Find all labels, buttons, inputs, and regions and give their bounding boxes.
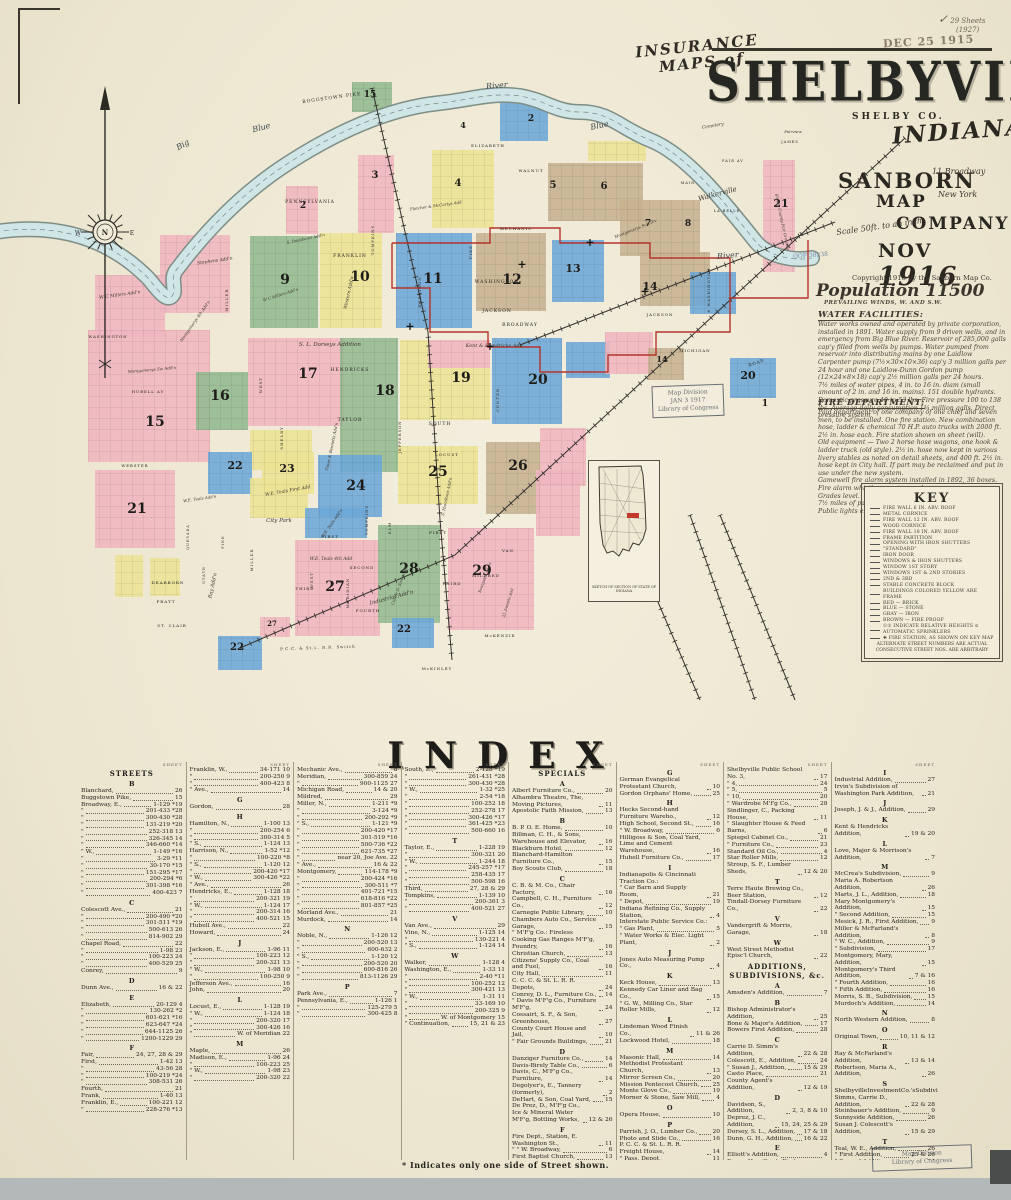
index-entry: Bowers First Addition,28 <box>727 1027 828 1034</box>
index-entry: Indiana Refining Co., Supply Station,4 <box>620 906 721 920</box>
index-entry: " Susan J., Addition,15 & 29 <box>727 1065 828 1072</box>
index-letter-header: T <box>835 1138 936 1146</box>
street-label: MILLER <box>249 549 254 572</box>
index-entry: Hubell Ave.,22 <box>190 923 291 930</box>
sheet-number: 4 <box>460 120 466 130</box>
index-entry: "30-170 *15 <box>81 863 183 870</box>
index-entry: First,1-42 13 <box>81 1059 183 1066</box>
index-entry: South, E.,2-128 *19 <box>405 767 506 774</box>
index-entry: Simms, Carrie D., Addition,22 & 28 <box>835 1095 936 1109</box>
street-label: MAIN <box>681 181 696 185</box>
sheet-label: SHEET <box>620 762 721 767</box>
index-letter-header: G <box>620 769 721 777</box>
index-entry: Van Ave.,29 <box>405 923 506 930</box>
sheet-number: 27 <box>325 579 344 595</box>
index-footnote: * Indicates only one side of Street show… <box>0 1160 1011 1170</box>
index-entry: Love, Major & Morrison's Addition,7 <box>835 848 936 862</box>
street-label: ST. CLAIR <box>157 623 187 628</box>
street-label: LOCUST <box>435 452 459 457</box>
index-entry: " Fair Grounds Buildings,21 <box>512 1039 613 1046</box>
index-entry: ShelbyvilleInvestmentCo.'sSubdivision,8 <box>835 1088 936 1095</box>
index-entry: "200-325 9 <box>405 1008 506 1015</box>
street-label: STATE <box>201 566 206 584</box>
parcel-grid <box>690 272 736 314</box>
index-entry: Montgomery's Third Addition,7 & 16 <box>835 967 936 981</box>
index-entry: "814-902 29 <box>81 934 183 941</box>
index-entry: Photo and Slide Co.,16 <box>620 1136 721 1143</box>
street-label: TOMPKINS <box>364 505 369 535</box>
index-entry: "500-660 16 <box>405 828 506 835</box>
index-entry: Elizabeth,20-129 4 <box>81 1002 183 1009</box>
addition-label: City Park <box>266 518 292 524</box>
street-label: HARRISON <box>417 276 422 308</box>
sheet-number: 22 <box>227 459 242 472</box>
street-label: PRATT <box>157 599 176 604</box>
index-entry: "3-124 *9 <box>297 808 398 815</box>
key-footnote-1: ALTERNATE STREET NUMBERS ARE ACTUAL <box>870 642 994 648</box>
index-entry: "200-321 19 <box>190 896 291 903</box>
index-entry: Chapel Road,22 <box>81 941 183 948</box>
index-entry: "400-529 25 <box>81 961 183 968</box>
index-entry: " Gas Plant,5 <box>620 926 721 933</box>
publisher-address2: New York <box>938 190 977 199</box>
index-entry: "100-223 25 <box>190 1062 291 1069</box>
index-entry: "623-647 *24 <box>81 1022 183 1029</box>
street-label: FOURTH <box>356 608 381 613</box>
index-entry: Cossairt, S. F., & Son, Greenhouse,27 <box>512 1012 613 1026</box>
index-entry: Davidson, S., Addition,2, 3, 8 & 10 <box>727 1102 828 1116</box>
index-letter-header: C <box>727 1036 828 1044</box>
sheet-number: 8 <box>685 219 691 229</box>
index-entry: "200-424 *16 <box>297 876 398 883</box>
index-entry: "131-219 *20 <box>81 822 183 829</box>
index-entry: Susan J. Colescott's Addition,15 & 29 <box>835 1122 936 1136</box>
sheet-label: SHEET <box>512 762 613 767</box>
parcel-grid <box>358 155 394 233</box>
index-letter-header: N <box>835 1009 936 1017</box>
sheet-number: 1 <box>762 399 768 409</box>
street-label: PENNSYLVANIA <box>285 199 335 205</box>
sheet-number: 17 <box>298 366 317 382</box>
index-entry: Industrial Addition,27 <box>835 777 936 784</box>
fire-station-cross-icon: + <box>517 258 526 271</box>
index-entry: " 10,20 <box>727 794 828 801</box>
index-entry: Montgomery,114-178 *9 <box>297 869 398 876</box>
index-entry: "1-98 23 <box>81 948 183 955</box>
index-entry: Buggstown Pike,15 <box>81 795 183 802</box>
map-sheet: 1524345622178910111213141415161718192020… <box>0 0 1011 1180</box>
indiana-outline <box>591 463 651 581</box>
index-entry: Hilligoss & Son, Coal Yard, Lime and Cem… <box>620 835 721 855</box>
index-entry: "130-262 *2 <box>81 1008 183 1015</box>
sheet-number: 24 <box>346 478 366 494</box>
key-title: KEY <box>870 491 994 506</box>
index-column: SHEETMechanic Ave.,8Meridian,300-859 24"… <box>293 762 401 1160</box>
index-entry: Keck House,13 <box>620 980 721 987</box>
index-entry: "200-520 20 <box>297 961 398 968</box>
index-column: SHEETSPECIALSAAlbert Furniture Co.,20Alh… <box>508 762 616 1160</box>
sheet-number: 16 <box>210 388 229 404</box>
index-entry: " S.,1-124 13 <box>190 841 291 848</box>
index-section-header: ADDITIONS, SUBDIVISIONS, &c. <box>727 962 828 980</box>
index-entry: Harrison, N.,1-52 *12 <box>190 848 291 855</box>
index-entry: " W.,1-31 11 <box>405 994 506 1001</box>
index-entry: Miller, N.,1-211 *9 <box>297 801 398 808</box>
index-letter-header: C <box>512 875 613 883</box>
index-entry: " First Addition,25 & 26 <box>835 1152 936 1159</box>
street-label: SOUTH <box>429 421 452 427</box>
index-entry: "258-435 17 <box>405 872 506 879</box>
index-column: SHEETGGerman Evangelical Protestant Chur… <box>616 762 724 1160</box>
street-label: McKINLEY <box>422 666 453 671</box>
index-entry: "200-361 3 <box>405 899 506 906</box>
index-entry: Interstate Public Service Co.: <box>620 919 721 926</box>
index-entry: "621-735 *27 <box>297 849 398 856</box>
index-entry: " G. W., Milling Co., Star Roller Mills,… <box>620 1001 721 1015</box>
index-letter-header: T <box>405 837 506 845</box>
sheet-number: 20 <box>528 372 548 388</box>
street-label: WEST <box>309 572 314 588</box>
index-entry: Jones Auto Measuring Pump Co.,4 <box>620 957 721 971</box>
index-entry: " S.,1-120 12 <box>190 862 291 869</box>
street-label: TAYLOR <box>338 417 363 423</box>
svg-text:E: E <box>130 230 134 237</box>
index-letter-header: D <box>512 1048 613 1056</box>
index-entry: " Ave.,16 & 22 <box>297 862 398 869</box>
index-entry: "130-221 4 <box>405 937 506 944</box>
parcel-grid <box>605 332 653 374</box>
index-entry: Methodist Protestant Church,13 <box>620 1061 721 1075</box>
index-entry: " M'F'g Co.: Fireless Cooking Gas Ranges… <box>512 930 613 950</box>
index-entry: Pennsylvania, E.,1-126 1 <box>297 998 398 1005</box>
index-entry: Maria A. Robertson Addition,26 <box>835 878 936 892</box>
index-letter-header: B <box>512 817 613 825</box>
index-letter-header: N <box>297 925 398 933</box>
index-entry: " W.,300-426 *22 <box>190 875 291 882</box>
index-entry: Sunnyside Addition,26 <box>835 1115 936 1122</box>
index-entry: John,20 <box>190 987 291 994</box>
index-entry: Mary Montgomery's Addition,15 <box>835 899 936 913</box>
index-entry: "500-613 26 <box>81 927 183 934</box>
index-entry: Vine, N.,1-125 14 <box>405 930 506 937</box>
index-letter-header: K <box>835 816 936 824</box>
parcel-grid <box>400 340 428 420</box>
index-entry: Kent & Hendricks Addition,19 & 20 <box>835 824 936 838</box>
index-entry: " 4,24 <box>727 781 828 788</box>
index-entry: " W.,1-98 23 <box>190 1068 291 1075</box>
index-entry: "3-29 *11 <box>81 856 183 863</box>
index-letter-header: B <box>81 780 183 788</box>
index-entry: C. B. & M. Co., Chair Factory,16 <box>512 883 613 897</box>
index-entry: "300-430 *28 <box>81 815 183 822</box>
parcel-grid <box>115 555 143 597</box>
street-label: BROADWAY <box>502 322 538 328</box>
sheet-number: 4 <box>455 178 462 189</box>
sheet-number: 2 <box>528 114 534 124</box>
index-entry: "228-276 *13 <box>81 1107 183 1114</box>
fire-department-heading: FIRE DEPARTMENT: <box>818 398 925 409</box>
index-entry: "W. of Meridian 22 <box>190 1031 291 1038</box>
index-letter-header: C <box>81 899 183 907</box>
index-entry: Davis-Birely Table Co.,6 <box>512 1063 613 1070</box>
index-entry: Irvin's Subdivision of Washington Park A… <box>835 784 936 798</box>
index-letter-header: H <box>620 799 721 807</box>
index-letter-header: J <box>190 939 291 947</box>
index-entry: Bone & Major's Addition,17 <box>727 1021 828 1028</box>
index-entry: Franklin, E.,100-221 12 <box>81 1100 183 1107</box>
street-label: FRANKLIN <box>333 253 367 259</box>
index-entry: "600-632 2 <box>297 947 398 954</box>
parcel-grid <box>486 442 540 514</box>
index-entry: Montgomery, Mary, Addition,15 <box>835 953 936 967</box>
index-entry: Spiegel Cabinet Co.,21 <box>727 835 828 842</box>
fire-station-cross-icon: + <box>485 340 494 353</box>
index-entry: City Hall,11 <box>512 971 613 978</box>
street-label: DEARBORN <box>152 580 185 585</box>
railroad-line <box>720 515 795 700</box>
key-entry: ①② INDICATE RELATIVE HEIGHTS ⊙ AUTOMATIC… <box>870 624 994 636</box>
index-entry: Kennedy Car Liner and Bag Co.,15 <box>620 987 721 1001</box>
index-section-header: STREETS <box>81 769 183 778</box>
street-label: PINE <box>221 535 225 548</box>
index-entry: Hamilton, N.,1-100 13 <box>190 821 291 828</box>
index-entry: Howard,24 <box>190 930 291 937</box>
water-facilities-heading: WATER FACILITIES: <box>818 310 923 321</box>
index-entry: Robertson, Maria A., Addition,26 <box>835 1065 936 1079</box>
library-stamp-mid: Map Division JAN 3 1917 Library of Congr… <box>651 384 724 418</box>
railroad-line <box>690 515 755 700</box>
index-entry: "100-220 *8 <box>190 855 291 862</box>
index-entry: " Water Works & Elec. Light Plant,2 <box>620 933 721 947</box>
city-title: SHELBYVILLE <box>706 51 1011 114</box>
index-entry: "301-519 *16 <box>297 835 398 842</box>
index-letter-header: V <box>727 915 828 923</box>
sheet-number: 11 <box>423 271 442 287</box>
index-entry: Morner & Stone, Saw Mill,4 <box>620 1095 721 1102</box>
index-entry: Davis, C., M'F'g Co., Furniture,14 <box>512 1069 613 1083</box>
street-label: McKENZIE <box>484 633 515 638</box>
index-entry: Gordon Orphans' Home,25 <box>620 791 721 798</box>
index-letter-header: P <box>297 983 398 991</box>
index-entry: Opera House,10 <box>620 1112 721 1119</box>
river-label: River <box>716 250 741 261</box>
index-entry: "100-250 9 <box>190 974 291 981</box>
index-entry: Monte Glove Co.,19 <box>620 1088 721 1095</box>
sheet-number: 9 <box>280 272 290 288</box>
index-entry: Jefferson Ave.,16 <box>190 981 291 988</box>
checkmark-icon: ✓ <box>938 12 948 26</box>
fire-station-cross-icon: + <box>640 285 649 298</box>
index-entry: Madison, E.,1-96 24 <box>190 1055 291 1062</box>
index-letter-header: J <box>835 799 936 807</box>
index-entry: Colescott Ave.,21 <box>81 907 183 914</box>
sheet-number: 3 <box>372 170 379 181</box>
index-entry: C. C. C. & St. L. R. R. Depots,24 <box>512 978 613 992</box>
index-entry: " Slaughter House & Feed Barns,6 <box>727 821 828 835</box>
index-column: SHEETShelbyville Public School No. 3,17"… <box>723 762 831 1160</box>
index-letter-header: O <box>620 1104 721 1112</box>
index-entry: "200-254 6 <box>190 828 291 835</box>
index-entry: "200-320 17 <box>190 1018 291 1025</box>
addition-label: W.E. Teals 4th Add <box>310 556 353 562</box>
index-entry: "100-223 24 <box>81 954 183 961</box>
index-entry: "100-252 12 <box>405 981 506 988</box>
index-entry: "100-219 *24 <box>81 1073 183 1080</box>
index-entry: "300-426 *17 <box>405 815 506 822</box>
index-entry: " S.,1-121 *9 <box>297 821 398 828</box>
index-entry: Citizens' Supply Co., Coal and Fuel,16 <box>512 958 613 972</box>
index-entry: Washington, E.,1-33 11 <box>405 967 506 974</box>
index-letter-header: M <box>190 1040 291 1048</box>
index-entry: Chambers Auto Co., Service Garage,15 <box>512 917 613 931</box>
index-letter-header: B <box>727 999 828 1007</box>
street-label: MICHIGAN <box>679 348 710 353</box>
index-entry: " Subdivision,17 <box>835 946 936 953</box>
index-entry: "1200-1229 29 <box>81 1036 183 1043</box>
index-letter-header: P <box>620 1121 721 1129</box>
parcel-grid <box>492 338 562 424</box>
index-entry: Jackson, E.,1-96 11 <box>190 947 291 954</box>
index-entry: "200-420 *17 <box>297 828 398 835</box>
index-entry: "346-660 *14 <box>81 842 183 849</box>
index-entry: Taylor, E.,1-228 19 <box>405 845 506 852</box>
index-letter-header: F <box>512 1126 613 1134</box>
index-letter-header: L <box>620 1016 721 1024</box>
street-label: MERIDIAN <box>345 578 350 609</box>
index-entry: "245-257 *17 <box>405 865 506 872</box>
sheet-number: 15 <box>145 414 164 430</box>
index-letter-header: E <box>727 1144 828 1152</box>
index-letter-header: W <box>727 939 828 947</box>
sheet-number: 25 <box>428 464 447 480</box>
fire-station-cross-icon: + <box>405 320 414 333</box>
index-entry: "801-857 *25 <box>297 903 398 910</box>
index-entry: Colescott, E., Addition,24 <box>727 1058 828 1065</box>
index-entry: Albert Furniture Co.,20 <box>512 788 613 795</box>
index-entry: "644-1125 26 <box>81 1029 183 1036</box>
index-letter-header: L <box>835 840 936 848</box>
street-label: QUESADA <box>186 524 190 550</box>
index-entry: "600-816 26 <box>297 967 398 974</box>
addition-label: S. L. Dorseys Addition <box>299 342 361 348</box>
index-entry: Michigan Road,14 & 20 <box>297 787 398 794</box>
index-entry: Bishop Administrator's Addition,25 <box>727 1007 828 1021</box>
index-entry: German Evangelical Protestant Church,10 <box>620 777 721 791</box>
index-entry: "near 20, Joe Ave. 22 <box>297 855 398 862</box>
index-entry: Fourth,21 <box>81 1086 183 1093</box>
index-letter-header: L <box>190 996 291 1004</box>
index-entry: "252-318 13 <box>81 829 183 836</box>
index-entry: Campbell, C. H., Furniture Co.,12 <box>512 896 613 910</box>
index-entry: Walker,1-128 4 <box>405 960 506 967</box>
index-entry: Casto Place,21 <box>727 1071 828 1078</box>
index-entry: Blanchard-Hamilton Furniture Co.,15 <box>512 852 613 866</box>
street-label: WALNUT <box>519 168 544 173</box>
index-entry: Carnegie Public Library,10 <box>512 910 613 917</box>
street-label: LA BELLE <box>714 209 740 213</box>
street-label: SECOND <box>350 565 375 570</box>
index-entry: Carrie D. Simm's Addition,22 & 28 <box>727 1044 828 1058</box>
index-entry: "200-294 *6 <box>81 876 183 883</box>
street-label: TOMPKINS <box>370 225 375 255</box>
sheet-number: 19 <box>451 370 470 386</box>
sheet-number: 22 <box>397 624 411 635</box>
index-table: SHEETSTREETSBBlanchard,26Buggstown Pike,… <box>78 762 938 1160</box>
svg-text:W: W <box>75 230 82 237</box>
index-entry: Sindlinger, C., Packing House,11 <box>727 808 828 822</box>
index-letter-header: O <box>835 1026 936 1034</box>
index-entry: High School, Second St.,16 <box>620 821 721 828</box>
index-entry: Marts, J. L., Addition,18 <box>835 892 936 899</box>
addition-label: Kent & Hendricks Add. <box>465 343 525 349</box>
street-label: P.C.C. & St.L. R.R. Switch <box>280 644 356 652</box>
street-label: FIRST <box>429 530 447 535</box>
index-entry: "2-54 *18 <box>405 794 506 801</box>
index-entry: "300-314 5 <box>190 835 291 842</box>
index-entry: McCrea's Subdivision,9 <box>835 871 936 878</box>
street-label: CENTER <box>495 388 500 412</box>
street-label: ELIZABETH <box>471 143 505 148</box>
index-letter-header: D <box>81 977 183 985</box>
index-entry: Amsden's Addition,7 <box>727 990 828 997</box>
index-entry: Miller & McFarland's Addition,8 <box>835 926 936 940</box>
index-entry: " W.,1-98 10 <box>190 967 291 974</box>
index-entry: Hubell Furniture Co.,17 <box>620 855 721 862</box>
index-entry: Stroup, S. F., Lumber Sheds,12 & 20 <box>727 862 828 876</box>
index-entry: "200-292 *9 <box>297 815 398 822</box>
index-entry: Frank,1-40 13 <box>81 1093 183 1100</box>
index-entry: Billman, C. H., & Sons, Warehouse and El… <box>512 832 613 846</box>
index-entry: Terre Haute Brewing Co., Beer Station,12 <box>727 886 828 900</box>
index-entry: " Fourth Addition,16 <box>835 980 936 987</box>
sheet-number: 20 <box>740 369 756 382</box>
index-entry: "300-426 16 <box>190 1025 291 1032</box>
index-entry: Conrey, D. L., Furniture Co.,14 <box>512 992 613 999</box>
index-entry: Hecks Second-hand Furniture Wareho.,12 <box>620 807 721 821</box>
index-entry: Mission Pentecost Church,25 <box>620 1082 721 1089</box>
index-entry: "326-345 14 <box>81 836 183 843</box>
street-label: JACKSON <box>481 308 512 314</box>
index-entry: Joseph, J. & J., Addition,29 <box>835 807 936 814</box>
index-entry: "200-250 9 <box>190 774 291 781</box>
index-entry: "500-598 16 <box>405 879 506 886</box>
population-note: Population 11500 <box>816 281 984 301</box>
street-label: ELM <box>387 522 392 534</box>
index-letter-header: W <box>405 952 506 960</box>
index-entry: Morland Ave.,21 <box>297 910 398 917</box>
index-entry: Lindeman Wood Finish Co.,11 & 26 <box>620 1024 721 1038</box>
index-entry: " Wardrobe M'f'g Co.,28 <box>727 801 828 808</box>
index-entry: Indianapolis & Cincinnati Traction Co.: <box>620 872 721 886</box>
index-entry: Murdock,14 <box>297 917 398 924</box>
index-entry: Broadway, E.,1-129 *19 <box>81 802 183 809</box>
sheet-number: 13 <box>565 262 580 275</box>
index-entry: County Agent's Addition,12 & 19 <box>727 1078 828 1092</box>
index-entry: DeHart, & Son, Coal Yard,15 <box>512 1097 613 1104</box>
index-entry: " Depot,19 <box>620 899 721 906</box>
index-entry: "200-490 *20 <box>81 914 183 921</box>
index-entry: Third,27, 28 & 29 <box>405 886 506 893</box>
river-label: Blue <box>589 119 610 132</box>
index-entry: Parrish, J. O., Lumber Co.,20 <box>620 1129 721 1136</box>
index-entry: "401-721 *15 <box>297 889 398 896</box>
index-entry: " Ave.,14 <box>190 787 291 794</box>
index-entry: "200-520 13 <box>297 940 398 947</box>
index-columns: SHEETSTREETSBBlanchard,26Buggstown Pike,… <box>78 762 938 1160</box>
index-entry: Park Ave.,7 <box>297 991 398 998</box>
index-entry: B. P. O. E. Home,10 <box>512 825 613 832</box>
index-entry: Tompkins,1-139 10 <box>405 893 506 900</box>
